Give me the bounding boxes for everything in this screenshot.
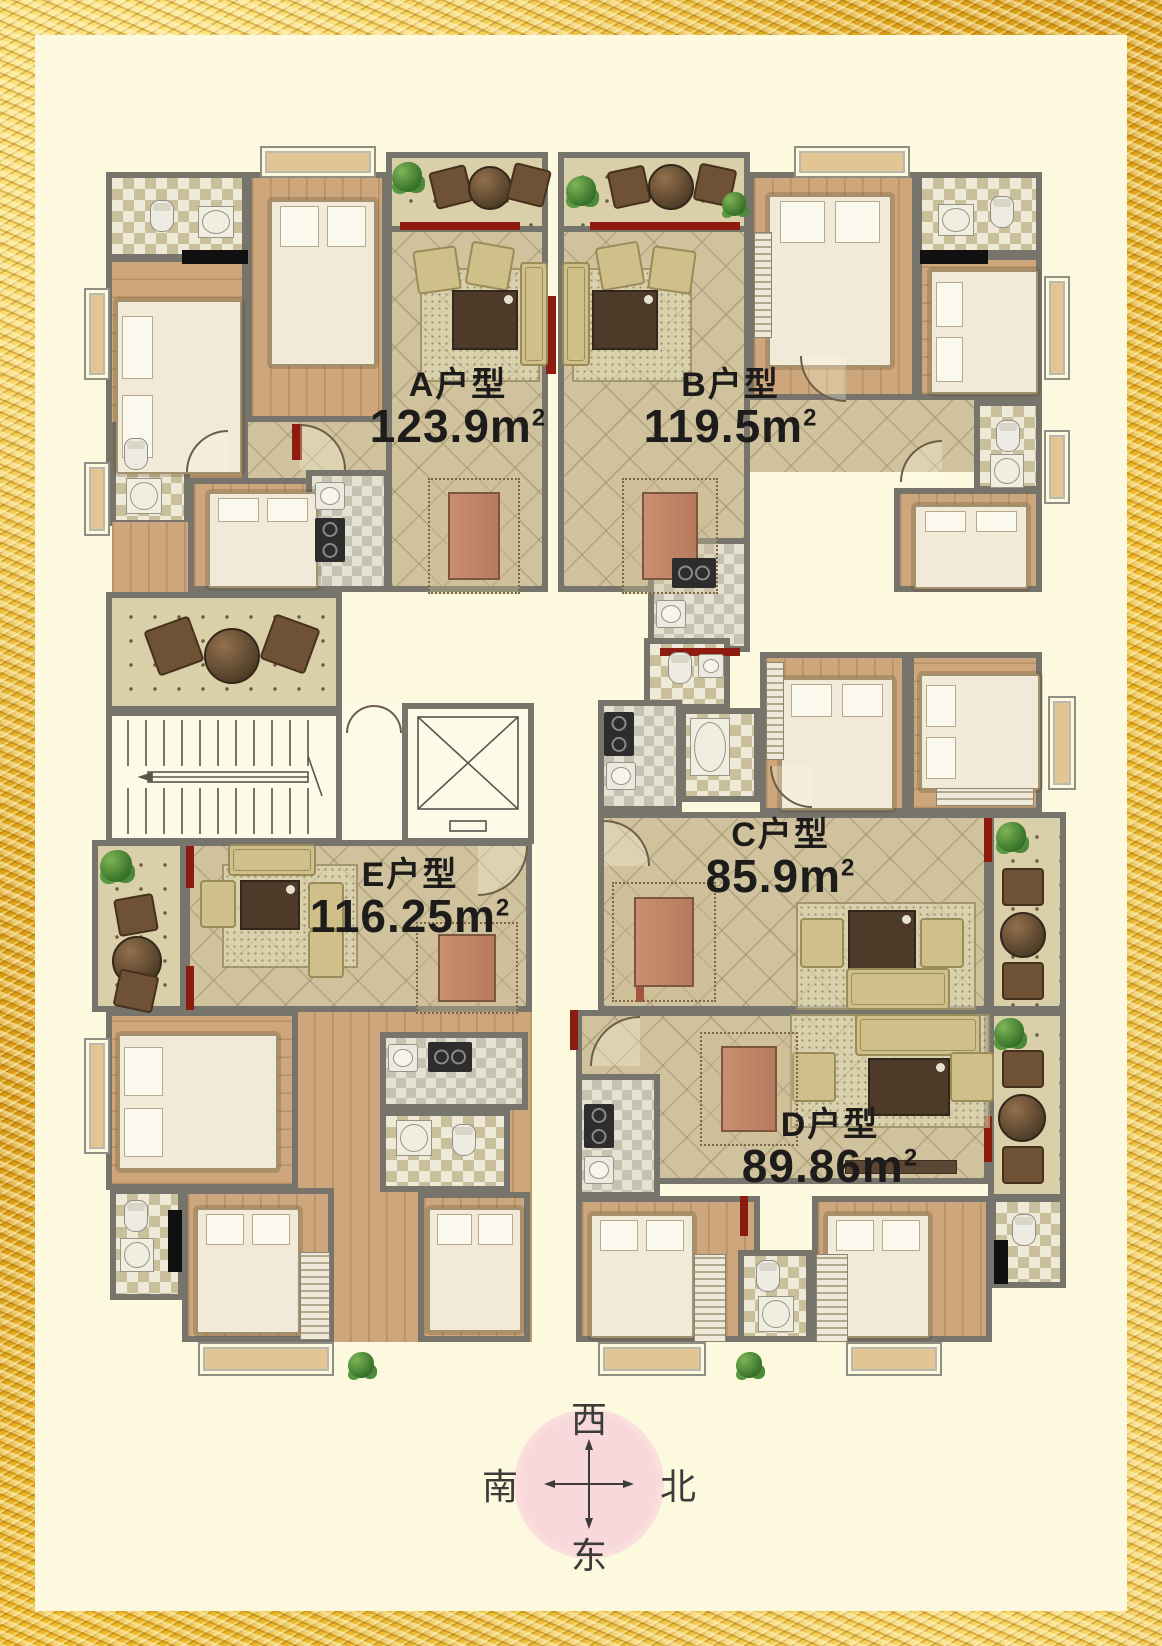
unit-area: 119.5m2 [618, 403, 843, 451]
compass-north-label: 北 [660, 1458, 696, 1510]
sink-icon [388, 1044, 418, 1072]
stairs-icon [112, 716, 336, 838]
bay-window [1048, 696, 1076, 790]
unit-label-c: C户型 85.9m2 [668, 818, 893, 901]
plant-icon [100, 850, 132, 882]
toilet-icon [452, 1124, 476, 1156]
vanity-counter [920, 250, 988, 264]
bay-window [84, 288, 110, 380]
wardrobe-icon [694, 1254, 726, 1342]
unit-area-unit: m [454, 890, 496, 942]
stove-icon [672, 558, 716, 588]
compass-rose: 西 南 北 东 [514, 1409, 664, 1559]
armchair-icon [800, 918, 844, 968]
wardrobe-icon [936, 788, 1034, 806]
red-column [400, 222, 520, 230]
round-table-icon [204, 628, 260, 684]
sink-icon [606, 762, 636, 790]
stove-icon [428, 1042, 472, 1072]
sink-icon [698, 654, 724, 678]
sink-icon [315, 482, 345, 510]
bay-window [84, 1038, 110, 1154]
toilet-icon [990, 196, 1014, 228]
armchair-icon [920, 918, 964, 968]
unit-area: 123.9m2 [348, 403, 568, 451]
unit-label-d: D户型 89.86m2 [700, 1108, 960, 1191]
coffee-table-icon [848, 910, 916, 970]
unit-area-sup: 2 [532, 405, 546, 432]
bed-icon [196, 1208, 300, 1334]
bed-icon [768, 195, 892, 367]
bed-icon [920, 674, 1040, 790]
unit-name: B户型 [618, 368, 843, 403]
unit-area-sup: 2 [904, 1145, 918, 1172]
wardrobe-icon [766, 662, 784, 760]
bed-icon [118, 1034, 278, 1170]
stove-icon [315, 518, 345, 562]
bed-icon [270, 200, 376, 366]
sink-icon [584, 1156, 614, 1184]
red-column [590, 222, 740, 230]
plant-icon [996, 822, 1026, 852]
armchair-icon [950, 1052, 994, 1102]
bay-window [846, 1342, 942, 1376]
armchair-icon [1002, 1146, 1044, 1184]
unit-area-value: 116.25 [310, 890, 454, 942]
dining-table-icon [428, 478, 520, 594]
toilet-icon [668, 652, 692, 684]
sink-icon [656, 600, 686, 628]
armchair-icon [112, 968, 159, 1013]
bay-window [598, 1342, 706, 1376]
bed-icon [208, 492, 318, 588]
bay-window [794, 146, 910, 178]
sofa-icon [855, 1014, 981, 1056]
toilet-icon [150, 200, 174, 232]
vanity-counter [182, 250, 248, 264]
sink-icon [938, 204, 974, 236]
armchair-icon [792, 1052, 836, 1102]
bay-window [84, 462, 110, 536]
plant-icon [348, 1352, 374, 1378]
unit-label-b: B户型 119.5m2 [618, 368, 843, 451]
unit-area-sup: 2 [841, 855, 855, 882]
vanity-counter [994, 1240, 1008, 1284]
red-column [740, 1196, 748, 1236]
unit-area-unit: m [862, 1140, 904, 1192]
bed-icon [590, 1214, 694, 1338]
armchair-icon [606, 164, 651, 209]
unit-area-unit: m [761, 400, 803, 452]
bay-window [1044, 276, 1070, 380]
bay-window [260, 146, 376, 178]
unit-name: C户型 [668, 818, 893, 853]
armchair-icon [465, 241, 516, 292]
unit-label-a: A户型 123.9m2 [348, 368, 568, 451]
shower-icon [758, 1296, 794, 1332]
unit-area: 89.86m2 [700, 1143, 960, 1191]
plant-icon [736, 1352, 762, 1378]
sofa-icon [846, 968, 950, 1010]
red-column [570, 1010, 578, 1050]
unit-name: A户型 [348, 368, 568, 403]
floor-plan-poster: A户型 123.9m2 B户型 119.5m2 C户型 85.9m2 D户型 8… [0, 0, 1162, 1646]
unit-area: 85.9m2 [668, 853, 893, 901]
toilet-icon [124, 438, 148, 470]
round-table-icon [998, 1094, 1046, 1142]
armchair-icon [412, 245, 462, 295]
compass-south-label: 南 [482, 1458, 518, 1510]
bay-window [1044, 430, 1070, 504]
stove-icon [604, 712, 634, 756]
armchair-icon [1002, 868, 1044, 906]
elevator-shaft [402, 703, 534, 844]
red-column [984, 818, 992, 862]
unit-area-unit: m [799, 850, 841, 902]
unit-name: E户型 [295, 858, 525, 893]
armchair-icon [113, 893, 159, 937]
armchair-icon [1002, 962, 1044, 1000]
toilet-icon [756, 1260, 780, 1292]
toilet-icon [124, 1200, 148, 1232]
sofa-icon [520, 262, 548, 366]
bed-icon [428, 1208, 522, 1332]
unit-area-value: 89.86 [742, 1140, 862, 1192]
sofa-icon [562, 262, 590, 366]
unit-area-value: 123.9 [370, 400, 490, 452]
toilet-icon [996, 420, 1020, 452]
toilet-icon [1012, 1214, 1036, 1246]
plant-icon [722, 192, 746, 216]
plant-icon [566, 176, 596, 206]
shower-icon [126, 478, 162, 514]
elevator-icon [408, 709, 528, 838]
shower-icon [990, 454, 1024, 488]
wardrobe-icon [816, 1254, 848, 1342]
unit-name: D户型 [700, 1108, 960, 1143]
vanity-counter [168, 1210, 182, 1272]
bed-icon [930, 270, 1038, 394]
stairwell [106, 710, 342, 844]
armchair-icon [647, 245, 697, 295]
red-column [186, 846, 194, 888]
wardrobe-icon [300, 1252, 330, 1340]
round-table-icon [648, 164, 694, 210]
unit-a-bedroom-3-floor [112, 522, 192, 592]
plant-icon [994, 1018, 1024, 1048]
unit-area-unit: m [490, 400, 532, 452]
shower-icon [120, 1238, 154, 1272]
unit-area-value: 119.5 [644, 400, 762, 452]
armchair-icon [200, 880, 236, 928]
unit-b-bathroom-1 [916, 172, 1042, 256]
armchair-icon [1002, 1050, 1044, 1088]
coffee-table-icon [452, 290, 518, 350]
round-table-icon [1000, 912, 1046, 958]
compass-east-label: 东 [571, 1527, 607, 1579]
sink-icon [396, 1120, 432, 1156]
red-column [186, 966, 194, 1010]
unit-area-value: 85.9 [706, 850, 800, 902]
plant-icon [392, 162, 422, 192]
unit-area: 116.25m2 [295, 893, 525, 941]
unit-area-sup: 2 [496, 895, 510, 922]
bathtub-icon [690, 718, 730, 776]
unit-area-sup: 2 [803, 405, 817, 432]
coffee-table-icon [240, 880, 300, 930]
armchair-icon [595, 241, 646, 292]
compass-west-label: 西 [571, 1391, 607, 1443]
bed-icon [914, 505, 1028, 589]
bay-window [198, 1342, 334, 1376]
wardrobe-icon [754, 232, 772, 338]
round-table-icon [468, 166, 512, 210]
sink-icon [198, 206, 234, 238]
unit-label-e: E户型 116.25m2 [295, 858, 525, 941]
stove-icon [584, 1104, 614, 1148]
coffee-table-icon [592, 290, 658, 350]
